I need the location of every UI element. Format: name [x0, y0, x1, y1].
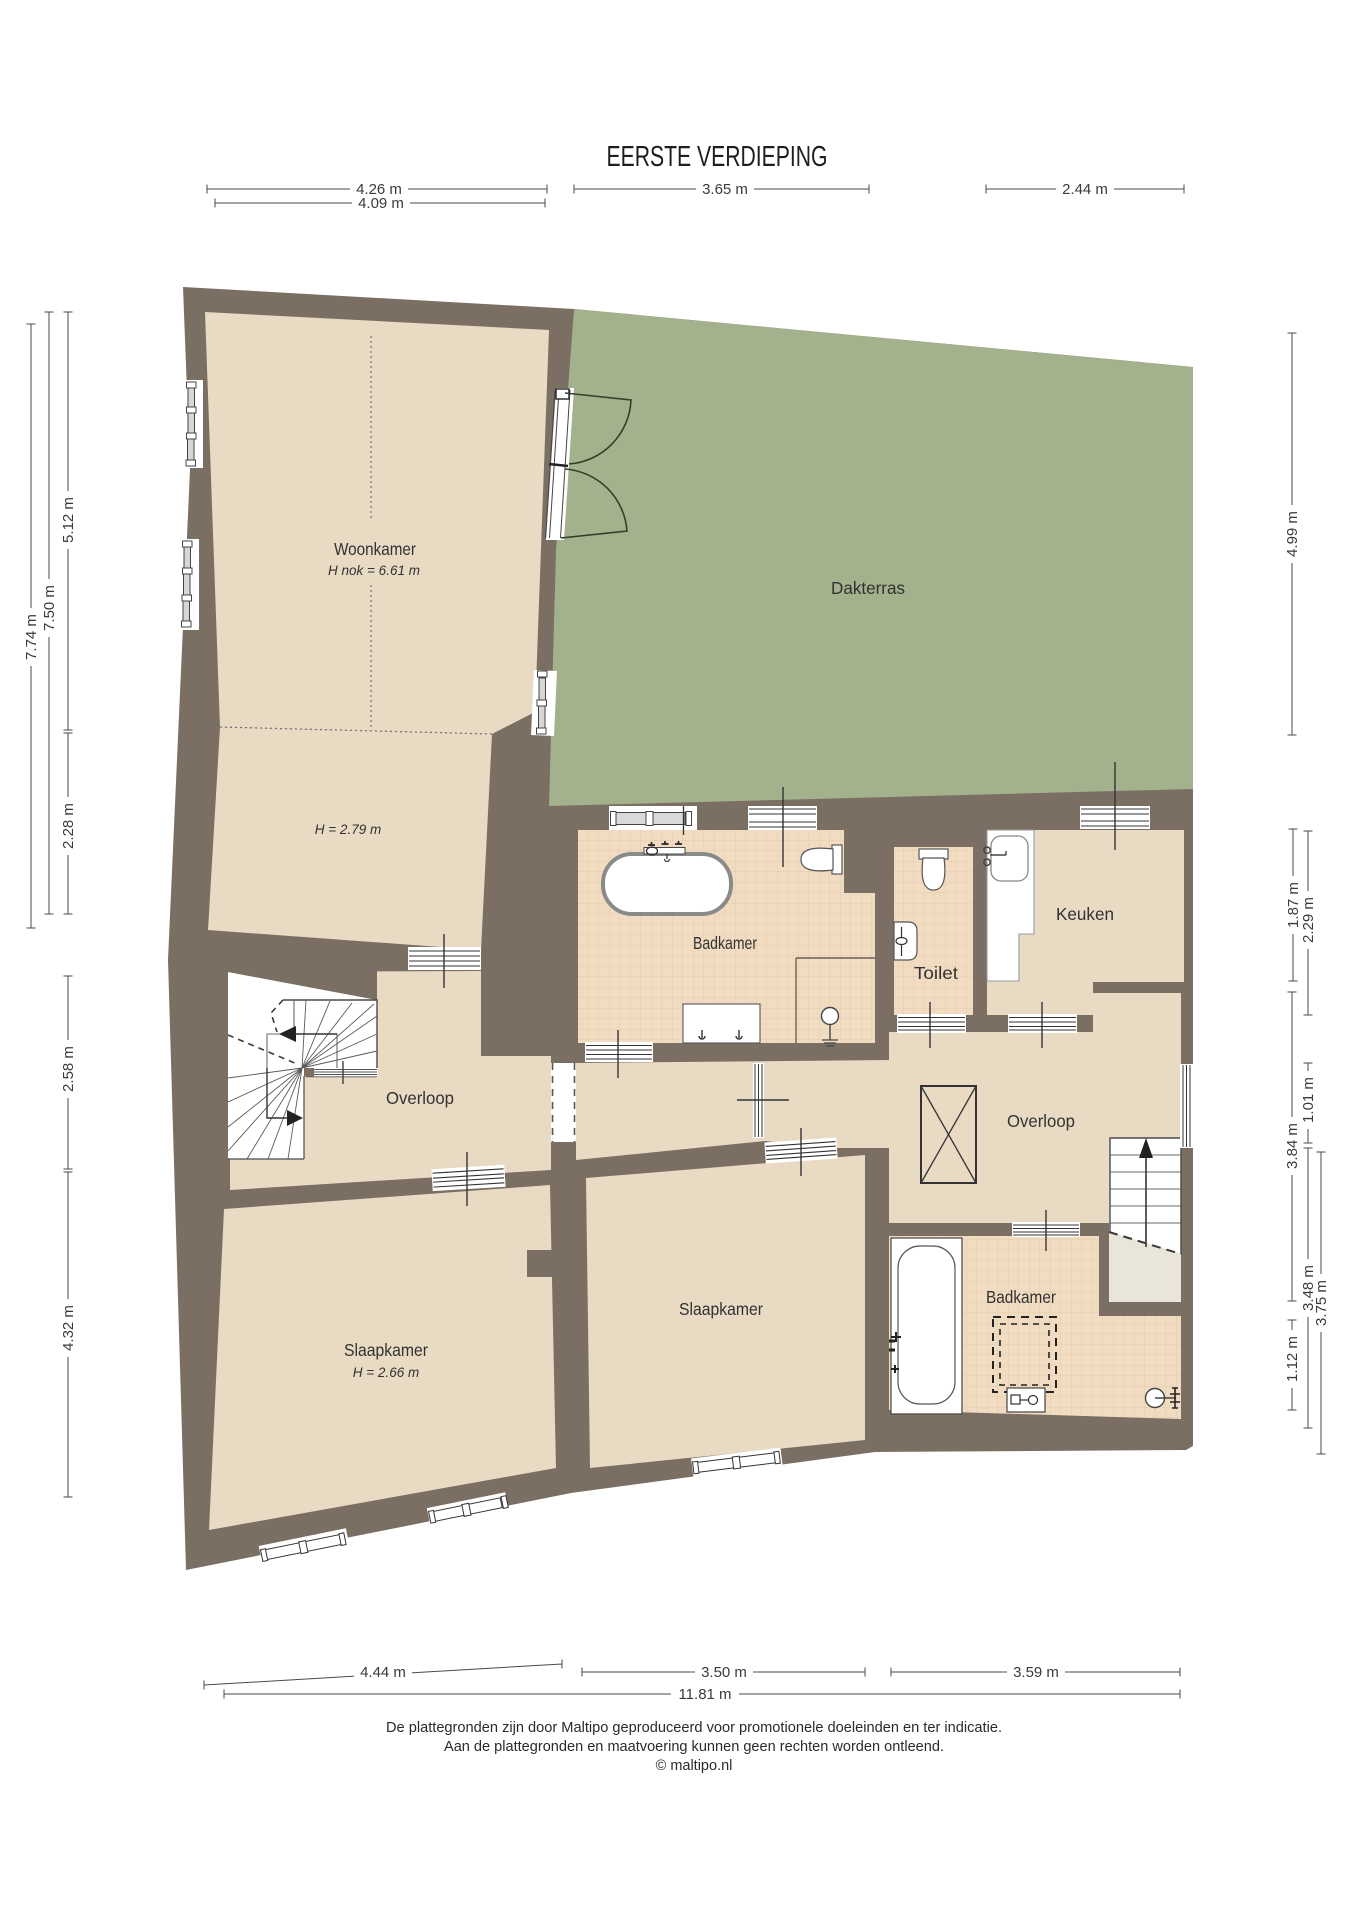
svg-text:5.12 m: 5.12 m	[60, 497, 77, 543]
svg-text:3.50 m: 3.50 m	[701, 1664, 747, 1681]
svg-text:3.65 m: 3.65 m	[702, 181, 748, 198]
svg-text:7.50 m: 7.50 m	[41, 585, 58, 631]
svg-text:Slaapkamer: Slaapkamer	[344, 1340, 428, 1360]
svg-text:4.32 m: 4.32 m	[60, 1305, 77, 1351]
svg-text:1.01 m: 1.01 m	[1300, 1077, 1317, 1123]
svg-text:3.59 m: 3.59 m	[1013, 1664, 1059, 1681]
svg-text:© maltipo.nl: © maltipo.nl	[656, 1758, 733, 1774]
svg-text:Overloop: Overloop	[1007, 1111, 1075, 1131]
svg-text:Woonkamer: Woonkamer	[334, 539, 416, 559]
svg-text:De plattegronden zijn door Mal: De plattegronden zijn door Maltipo gepro…	[386, 1720, 1002, 1736]
svg-text:1.12 m: 1.12 m	[1284, 1336, 1301, 1382]
svg-text:2.58 m: 2.58 m	[60, 1046, 77, 1092]
svg-text:Badkamer: Badkamer	[986, 1287, 1056, 1307]
svg-text:Slaapkamer: Slaapkamer	[679, 1299, 763, 1319]
svg-text:Badkamer: Badkamer	[693, 933, 757, 953]
svg-text:Dakterras: Dakterras	[831, 578, 905, 598]
svg-text:3.75 m: 3.75 m	[1313, 1280, 1330, 1326]
svg-text:H = 2.66 m: H = 2.66 m	[353, 1365, 419, 1380]
svg-text:4.44 m: 4.44 m	[360, 1664, 406, 1681]
svg-text:Aan de plattegronden en maatvo: Aan de plattegronden en maatvoering kunn…	[444, 1739, 944, 1755]
svg-text:4.99 m: 4.99 m	[1284, 511, 1301, 557]
svg-text:2.29 m: 2.29 m	[1300, 897, 1317, 943]
svg-text:7.74 m: 7.74 m	[23, 614, 40, 660]
svg-text:EERSTE VERDIEPING: EERSTE VERDIEPING	[606, 141, 827, 173]
svg-text:2.28 m: 2.28 m	[60, 803, 77, 849]
svg-text:H nok = 6.61 m: H nok = 6.61 m	[328, 563, 420, 578]
svg-text:Keuken: Keuken	[1056, 904, 1114, 924]
svg-text:2.44 m: 2.44 m	[1062, 181, 1108, 198]
svg-text:4.09 m: 4.09 m	[358, 195, 404, 212]
svg-text:Overloop: Overloop	[386, 1088, 454, 1108]
svg-text:Toilet: Toilet	[914, 963, 958, 983]
svg-text:11.81 m: 11.81 m	[678, 1686, 731, 1703]
svg-text:3.84 m: 3.84 m	[1284, 1123, 1301, 1169]
svg-text:H = 2.79 m: H = 2.79 m	[315, 822, 381, 837]
